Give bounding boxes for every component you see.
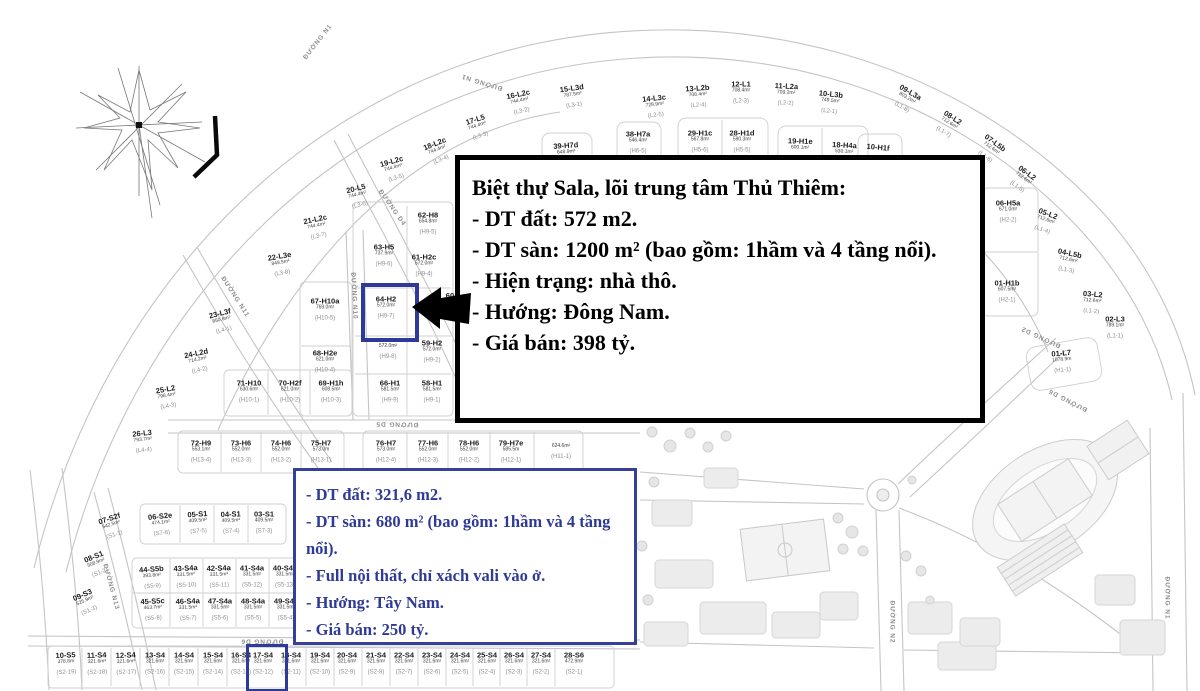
arrow-icon (0, 0, 1200, 691)
site-plan-map: 15-L3d787.5m²(L3-1)16-L2c744.4m²(L3-2)17… (0, 0, 1200, 691)
